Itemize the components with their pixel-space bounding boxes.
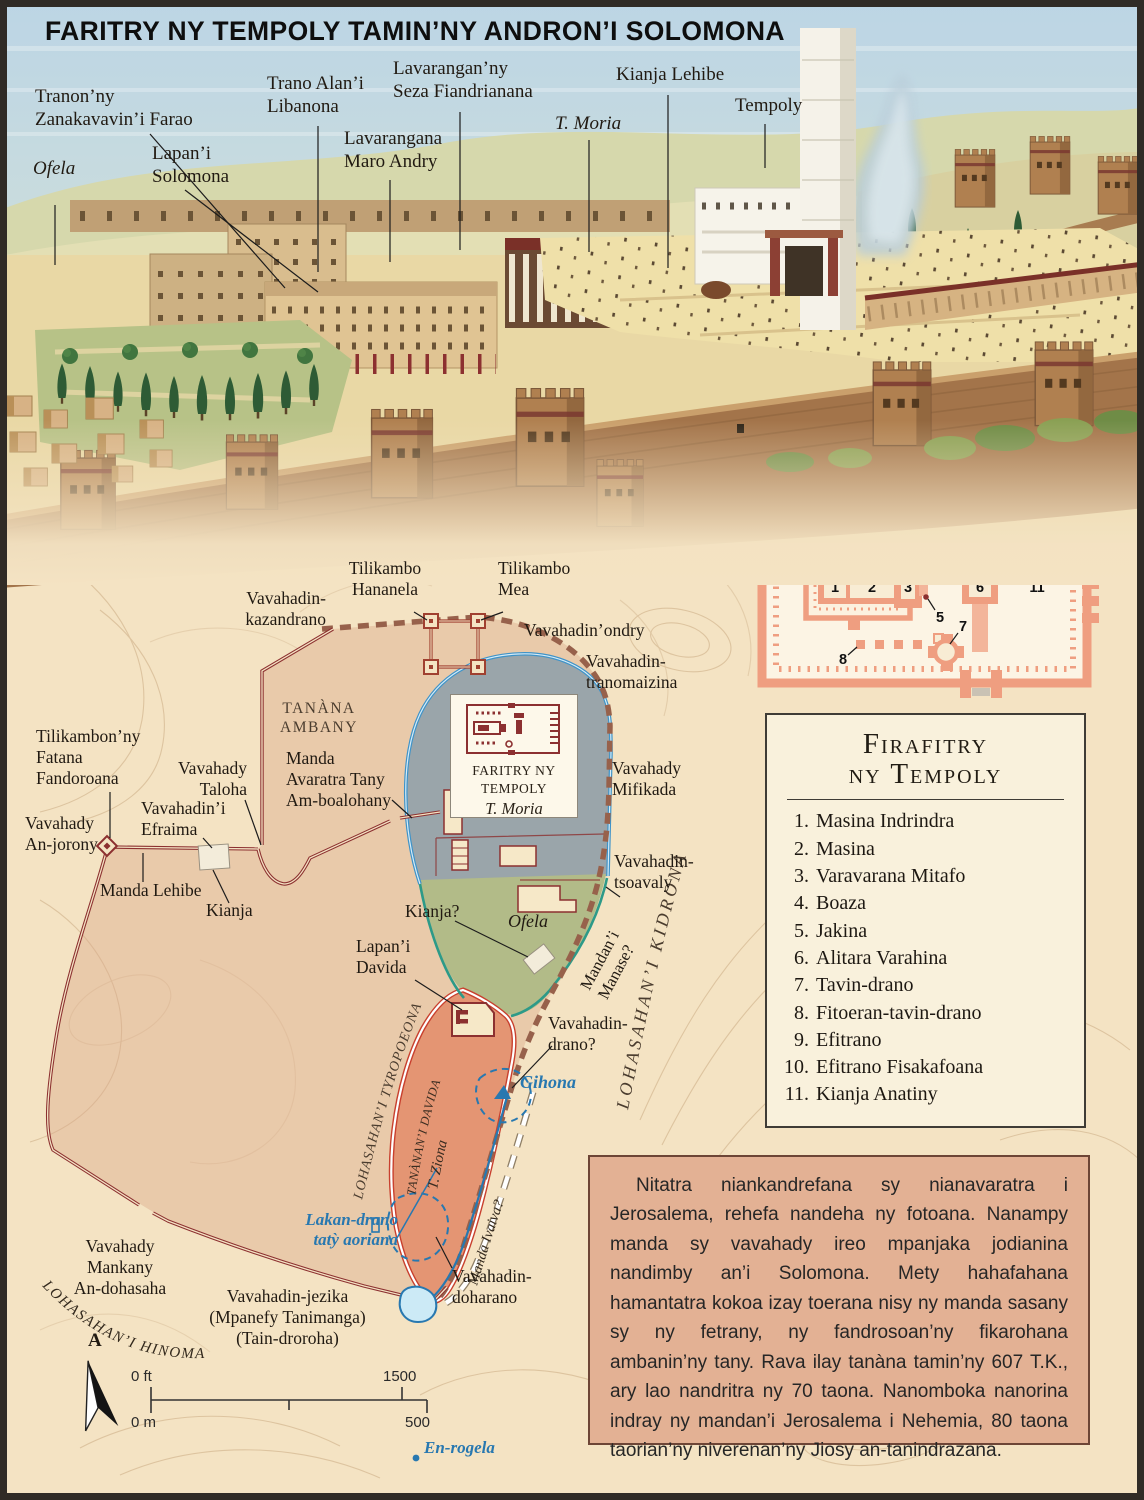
legend-item-number: 3. bbox=[767, 863, 809, 890]
page-title: FARITRY NY TEMPOLY TAMIN’NY ANDRON’I SOL… bbox=[45, 16, 785, 47]
info-panel: Nitatra niankandrefana sy nianavaratra i… bbox=[588, 1155, 1090, 1445]
legend-item-label: Efitrano Fisakafoana bbox=[816, 1054, 983, 1081]
legend-item-label: Jakina bbox=[816, 918, 867, 945]
label-solomons-palace: Lapan’i Solomona bbox=[152, 143, 229, 189]
scale-m-end: 500 bbox=[405, 1414, 430, 1432]
legend-item-number: 4. bbox=[767, 890, 809, 917]
label-broad-wall: Manda Lehibe bbox=[100, 880, 202, 901]
label-corner-gate: Vavahady An-jorony bbox=[25, 813, 98, 855]
label-tower-hananela: Tilikambo Hananela bbox=[330, 558, 440, 600]
label-square: Kianja bbox=[206, 900, 253, 921]
label-valley-gate: Vavahady Mankany An-dohasaha bbox=[52, 1236, 188, 1299]
label-ofela-illustration: Ofela bbox=[33, 158, 75, 181]
label-en-rogel: En-rogela bbox=[424, 1438, 495, 1458]
legend-title: Firafitry ny Tempoly bbox=[767, 729, 1084, 790]
legend-item-number: 8. bbox=[767, 1000, 809, 1027]
legend-item: 3.Varavarana Mitafo bbox=[767, 863, 1084, 890]
legend-item-label: Fitoeran-tavin-drano bbox=[816, 1000, 982, 1027]
legend-item-number: 7. bbox=[767, 972, 809, 999]
label-ofela-map: Ofela bbox=[508, 911, 548, 933]
legend-item: 1.Masina Indrindra bbox=[767, 808, 1084, 835]
legend-item-number: 5. bbox=[767, 918, 809, 945]
legend-item-number: 11. bbox=[767, 1081, 809, 1108]
label-porch-of-pillars: Lavarangana Maro Andry bbox=[344, 128, 442, 174]
legend-item: 10.Efitrano Fisakafoana bbox=[767, 1054, 1084, 1081]
label-temple: Tempoly bbox=[735, 95, 802, 118]
label-pharaohs-daughter-house: Tranon’ny Zanakavavin’i Farao bbox=[35, 86, 193, 132]
info-text: Nitatra niankandrefana sy nianavaratra i… bbox=[610, 1171, 1068, 1465]
scale-ft-start: 0 ft bbox=[131, 1368, 152, 1386]
label-gihon-spring: Gihona bbox=[520, 1072, 576, 1094]
label-original-north-wall: Manda Avaratra Tany Am-boalohany bbox=[286, 748, 391, 811]
legend-item-label: Efitrano bbox=[816, 1027, 882, 1054]
kianja-square bbox=[198, 844, 230, 870]
legend-title-line1: Firafitry bbox=[767, 729, 1084, 759]
legend-item: 9.Efitrano bbox=[767, 1027, 1084, 1054]
legend-list: 1.Masina Indrindra 2.Masina 3.Varavarana… bbox=[767, 808, 1084, 1108]
legend-item-number: 6. bbox=[767, 945, 809, 972]
legend-item: 7.Tavin-drano bbox=[767, 972, 1084, 999]
legend-item: 5.Jakina bbox=[767, 918, 1084, 945]
label-fish-gate: Vavahadin- kazandrano bbox=[186, 588, 326, 630]
temple-area-box-subtitle: T. Moria bbox=[451, 799, 577, 819]
legend-title-line2: ny Tempoly bbox=[767, 759, 1084, 789]
label-mount-moria-illustration: T. Moria bbox=[555, 113, 621, 136]
label-ephraim-gate: Vavahadin’i Efraima bbox=[141, 798, 226, 840]
legend-item-number: 1. bbox=[767, 808, 809, 835]
scale-ft-end: 1500 bbox=[383, 1368, 416, 1386]
legend-item-number: 9. bbox=[767, 1027, 809, 1054]
label-sheep-gate: Vavahadin’ondry bbox=[524, 620, 645, 641]
legend-item-label: Masina Indrindra bbox=[816, 808, 954, 835]
legend-item-number: 2. bbox=[767, 836, 809, 863]
compass-north-letter: A bbox=[88, 1330, 102, 1353]
label-porch-of-throne: Lavarangan’ny Seza Fiandrianana bbox=[393, 58, 533, 104]
legend-item: 4.Boaza bbox=[767, 890, 1084, 917]
legend-item-number: 10. bbox=[767, 1054, 809, 1081]
plan-number-7: 7 bbox=[959, 619, 967, 635]
label-old-gate: Vavahady Taloha bbox=[167, 758, 247, 800]
label-great-courtyard: Kianja Lehibe bbox=[616, 64, 724, 87]
legend-item: 11.Kianja Anatiny bbox=[767, 1081, 1084, 1108]
label-mifikada-gate: Vavahady Mifikada bbox=[612, 758, 681, 800]
label-water-gate: Vavahadin- drano? bbox=[548, 1013, 628, 1055]
legend-item-label: Masina bbox=[816, 836, 875, 863]
legend-item-label: Kianja Anatiny bbox=[816, 1081, 938, 1108]
label-prison-gate: Vavahadin- tranomaizina bbox=[586, 651, 677, 693]
temple-area-box-title: FARITRY NY TEMPOLY bbox=[451, 762, 577, 798]
label-dung-gate: Vavahadin-jezika (Mpanefy Tanimanga) (Ta… bbox=[200, 1286, 375, 1349]
legend-item: 6.Alitara Varahina bbox=[767, 945, 1084, 972]
plan-number-8b: 8 bbox=[839, 652, 847, 668]
label-tower-mea: Tilikambo Mea bbox=[498, 558, 570, 600]
label-horse-gate: Vavahadin- tsoavaly bbox=[614, 851, 694, 893]
label-square-question: Kianja? bbox=[405, 901, 459, 922]
legend-item-label: Alitara Varahina bbox=[816, 945, 947, 972]
legend-item-label: Tavin-drano bbox=[816, 972, 913, 999]
temple-mini-plan-icon bbox=[464, 703, 564, 755]
scale-m-start: 0 m bbox=[131, 1414, 156, 1432]
label-fountain-gate: Vavahadin- doharano bbox=[452, 1266, 532, 1308]
label-davids-palace: Lapan’i Davida bbox=[356, 936, 410, 978]
plan-number-5: 5 bbox=[936, 610, 944, 626]
label-tower-of-ovens: Tilikambon’ny Fatana Fandoroana bbox=[36, 726, 140, 789]
legend-item: 8.Fitoeran-tavin-drano bbox=[767, 1000, 1084, 1027]
label-lower-city: TANÀNA AMBANY bbox=[263, 700, 375, 737]
label-later-aqueduct: Lakan-drano tatỳ aoriana bbox=[272, 1210, 398, 1251]
legend-panel: Firafitry ny Tempoly 1.Masina Indrindra … bbox=[765, 713, 1086, 1128]
page: LOHASAHAN’I TYROPOEONA LOHASAHAN’I KIDRO… bbox=[0, 0, 1144, 1500]
legend-divider bbox=[787, 799, 1064, 801]
legend-item-label: Boaza bbox=[816, 890, 866, 917]
legend-item: 2.Masina bbox=[767, 836, 1084, 863]
label-house-of-forest-of-lebanon: Trano Alan’i Libanona bbox=[267, 73, 364, 119]
legend-item-label: Varavarana Mitafo bbox=[816, 863, 965, 890]
temple-area-box: FARITRY NY TEMPOLY T. Moria bbox=[450, 694, 578, 818]
